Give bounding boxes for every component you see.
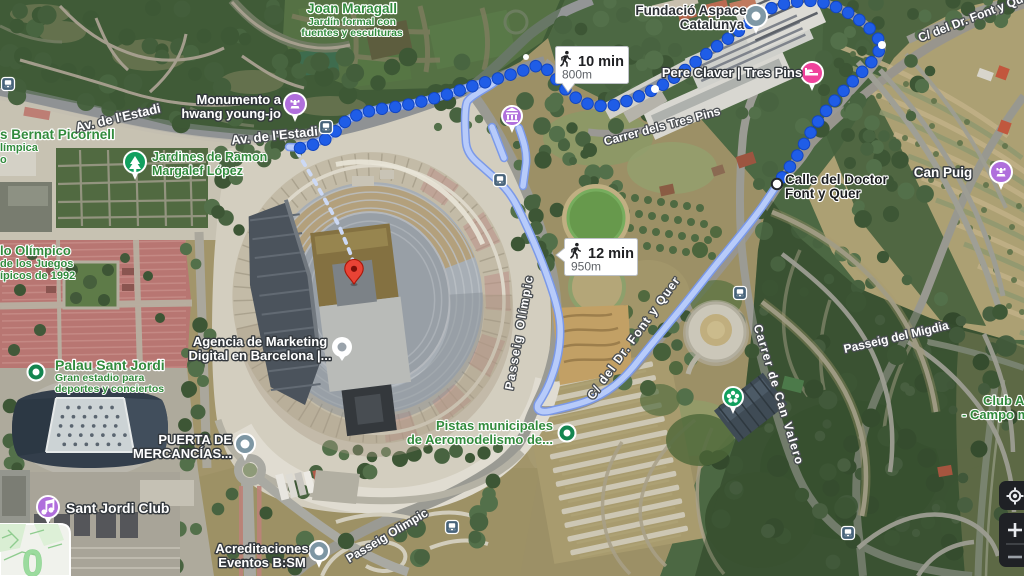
svg-text:o: o — [0, 154, 7, 166]
svg-text:Sant Jordi Club: Sant Jordi Club — [66, 500, 169, 516]
svg-text:0: 0 — [22, 543, 43, 576]
svg-text:Catalunya: Catalunya — [680, 17, 745, 32]
svg-text:Acreditaciones: Acreditaciones — [215, 541, 308, 556]
svg-text:Font y Quer: Font y Quer — [785, 186, 861, 201]
svg-text:hwang young-jo: hwang young-jo — [181, 106, 281, 121]
svg-text:950m: 950m — [571, 260, 601, 274]
svg-text:Club Ar: Club Ar — [983, 393, 1024, 408]
svg-text:Monumento a: Monumento a — [197, 92, 282, 107]
svg-text:ípicos de 1992: ípicos de 1992 — [0, 270, 75, 282]
svg-text:Pere Claver | Tres Pins: Pere Claver | Tres Pins — [662, 65, 802, 80]
svg-text:- Campo mu: - Campo mu — [962, 407, 1024, 422]
svg-text:PUERTA DE: PUERTA DE — [158, 432, 232, 447]
svg-text:Eventos B:SM: Eventos B:SM — [218, 555, 305, 570]
svg-text:Palau Sant Jordi: Palau Sant Jordi — [55, 357, 165, 373]
svg-text:de los Juegos: de los Juegos — [0, 258, 73, 270]
svg-text:Agencia de Marketing: Agencia de Marketing — [193, 334, 327, 349]
svg-text:fuentes y esculturas: fuentes y esculturas — [301, 27, 403, 39]
svg-text:Calle del Doctor: Calle del Doctor — [785, 172, 889, 187]
svg-text:Pistas municipales: Pistas municipales — [436, 418, 553, 433]
svg-text:lo Olímpico: lo Olímpico — [0, 243, 71, 258]
svg-text:MERCANCÍAS...: MERCANCÍAS... — [133, 446, 232, 461]
svg-text:Margalef López: Margalef López — [152, 164, 243, 178]
svg-text:800m: 800m — [562, 68, 592, 82]
svg-text:Can Puig: Can Puig — [914, 165, 973, 180]
svg-text:de Aeromodelismo de...: de Aeromodelismo de... — [407, 432, 553, 447]
svg-text:límpica: límpica — [0, 142, 39, 154]
svg-text:deportes y conciertos: deportes y conciertos — [55, 383, 164, 395]
svg-text:Jardines de Ramon: Jardines de Ramon — [152, 150, 267, 164]
svg-text:Joan Maragall: Joan Maragall — [307, 1, 397, 16]
svg-text:Digital en Barcelona |...: Digital en Barcelona |... — [188, 348, 331, 363]
svg-text:Fundació Aspace: Fundació Aspace — [635, 3, 747, 18]
